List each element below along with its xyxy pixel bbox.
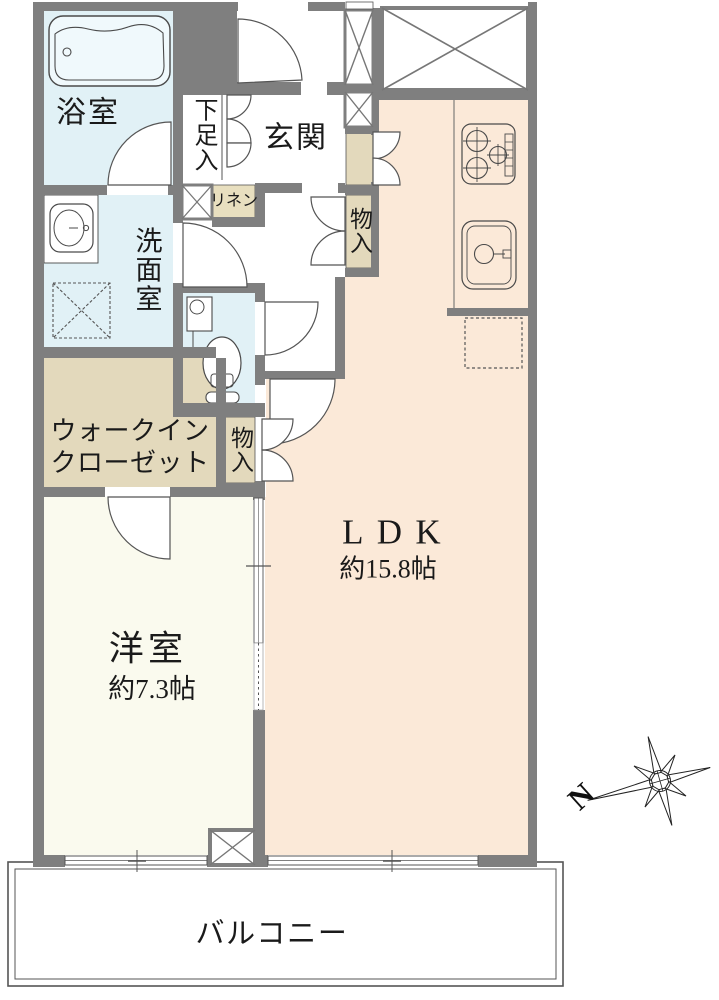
balcony-label: バルコニー <box>195 919 348 949</box>
ldk-label: LDK <box>342 515 454 552</box>
bedroom-label: 洋室 <box>109 632 187 669</box>
linen-label: リネン <box>210 194 258 211</box>
bathtub-icon <box>49 16 170 86</box>
washroom-label: 洗面室 <box>133 227 160 314</box>
walk-in-closet-label-line2: クローゼット <box>50 449 209 476</box>
washroom-door <box>183 223 247 287</box>
shaft-icon <box>382 8 528 90</box>
walk-in-closet-label-line1: ウォークイン <box>50 417 209 444</box>
pipe-space-icon <box>182 185 212 219</box>
bath-label: 浴室 <box>56 97 120 129</box>
floor-plan-drawing: N <box>0 0 719 1000</box>
lower-storage-label: 物入 <box>229 426 252 474</box>
hall-storage-door <box>311 231 345 265</box>
pipe-space-icon <box>210 830 255 865</box>
pipe-space-icon <box>345 92 373 127</box>
entrance-label: 玄関 <box>264 122 328 154</box>
floor-plan: N 浴室 下足入 玄関 リネン 洗面室 物入 物入 ウォークイン クローゼット … <box>0 0 719 1000</box>
washbasin-icon <box>44 195 98 263</box>
shoe-storage-door <box>227 119 251 143</box>
ldk-area-label: 約15.8帖 <box>339 555 437 582</box>
pipe-space-icon <box>345 10 373 85</box>
hall-storage-door <box>311 197 345 231</box>
hall-storage-label: 物入 <box>348 207 371 255</box>
entrance-door <box>238 19 302 83</box>
shoe-storage-door <box>227 95 251 119</box>
compass-rose-icon <box>588 737 711 826</box>
bedroom-area-label: 約7.3帖 <box>108 675 196 703</box>
compass-north-label: N <box>561 776 601 817</box>
toilet-door <box>265 302 318 355</box>
shoe-storage-label: 下足入 <box>191 98 215 173</box>
shoe-storage-door <box>227 143 251 167</box>
